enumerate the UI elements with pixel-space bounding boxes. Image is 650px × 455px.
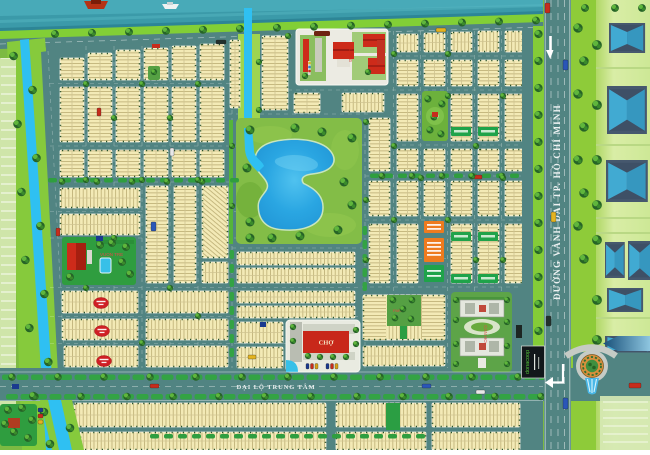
svg-text:VUON TRE: VUON TRE (100, 252, 123, 257)
svg-text:CHỢ: CHỢ (319, 340, 335, 347)
svg-text:ĐẠI LỘ TRUNG TÂM: ĐẠI LỘ TRUNG TÂM (237, 383, 316, 391)
svg-text:donacoop: donacoop (525, 350, 531, 374)
svg-text:TRƯỜNG: TRƯỜNG (348, 43, 353, 62)
svg-text:CAN HO: CAN HO (483, 325, 488, 343)
svg-text:ĐƯỜNG VÀNH ĐAI TP. HỒ CHÍ MINH: ĐƯỜNG VÀNH ĐAI TP. HỒ CHÍ MINH (552, 104, 562, 300)
